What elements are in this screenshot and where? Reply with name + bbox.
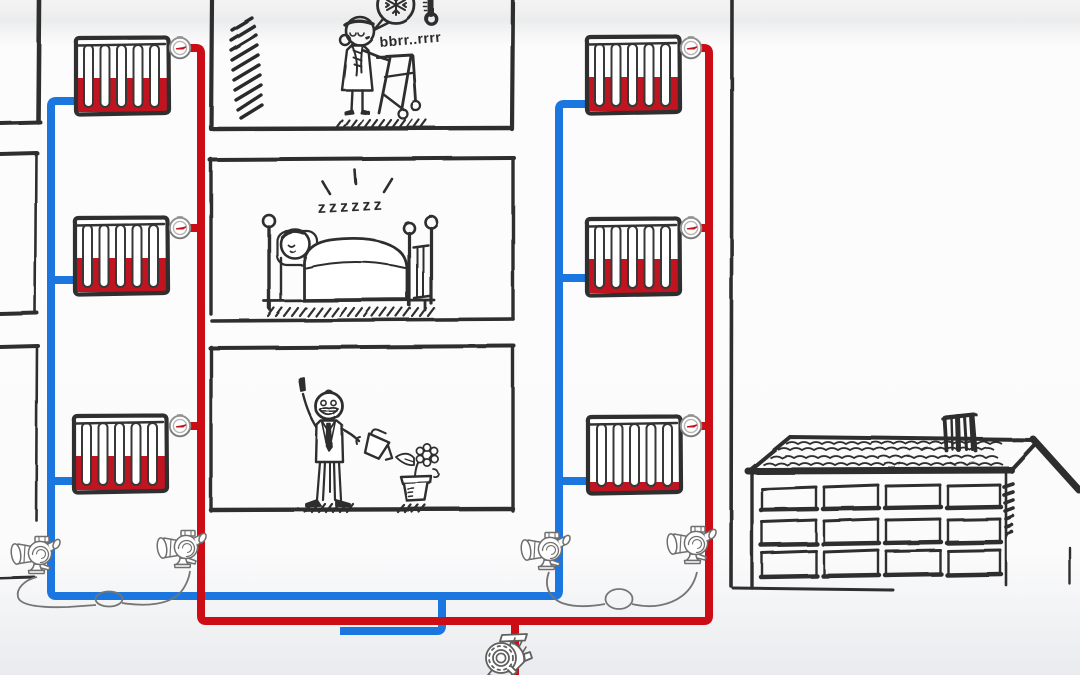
svg-text:zzzzzz: zzzzzz: [317, 197, 385, 217]
